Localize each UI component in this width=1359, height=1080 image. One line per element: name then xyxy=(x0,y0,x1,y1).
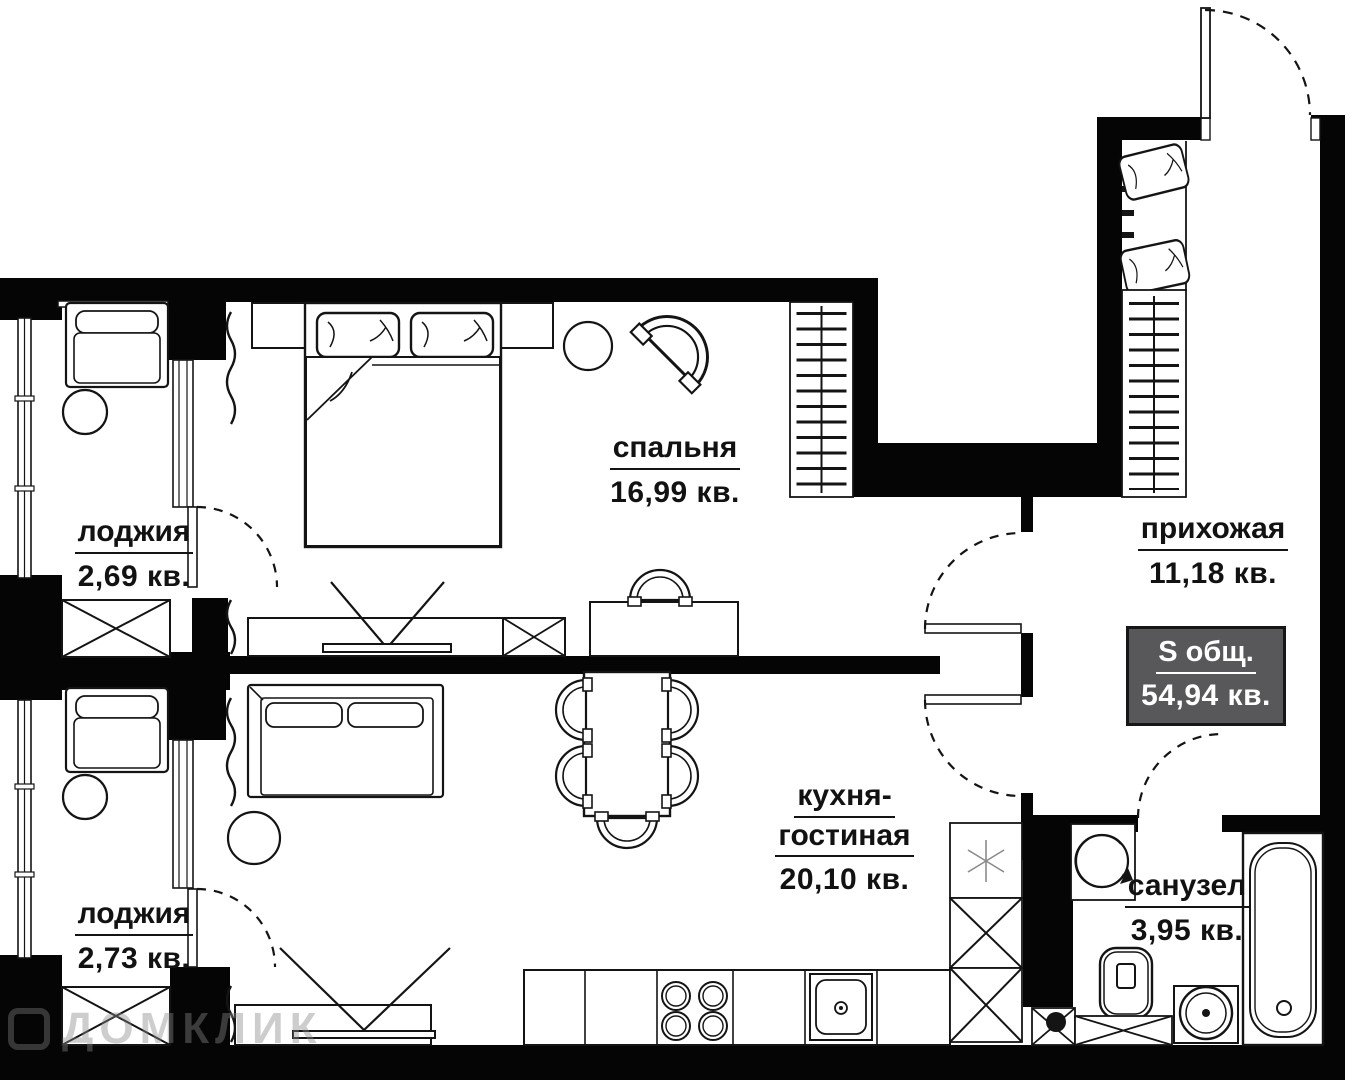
desk-icon xyxy=(590,602,738,656)
dining-chair-icon xyxy=(595,812,659,848)
room-name: гостиная xyxy=(775,820,913,858)
round-table-icon xyxy=(228,812,280,864)
room-area: 11,18 кв. xyxy=(1122,558,1304,590)
tv-unit-living xyxy=(235,948,450,1045)
tv-screen xyxy=(293,1031,435,1038)
hallway-furniture xyxy=(1118,141,1191,497)
dining-chair-icon xyxy=(556,678,592,742)
dining-table-icon xyxy=(584,672,670,816)
door-leaf xyxy=(925,695,1021,704)
dining-set xyxy=(556,672,698,848)
tv-unit-bedroom xyxy=(248,582,565,656)
bed-icon xyxy=(305,303,501,547)
toilet-icon xyxy=(1100,948,1152,1018)
cabinet-x-icon xyxy=(1075,1016,1172,1045)
room-name: прихожая xyxy=(1138,513,1289,551)
window-loggia-bottom-exterior xyxy=(15,700,34,958)
total-area-label: S общ. xyxy=(1156,636,1256,674)
loggia-top-furniture xyxy=(62,303,170,657)
bathroom-door-arc xyxy=(1138,734,1222,818)
dining-chair-icon xyxy=(662,678,698,742)
cabinet-x-icon xyxy=(950,968,1022,1042)
room-name: спальня xyxy=(610,432,741,470)
round-table-icon xyxy=(564,322,612,370)
coffee-table-icon xyxy=(63,390,107,434)
armchair-icon xyxy=(66,303,168,387)
room-area: 2,73 кв. xyxy=(48,943,220,975)
room-name: лоджия xyxy=(75,898,194,936)
dining-chair-icon xyxy=(556,744,592,808)
loggia-bottom-furniture xyxy=(62,688,170,1045)
kitchen-sink-icon xyxy=(810,974,872,1040)
room-name: лоджия xyxy=(75,516,194,554)
storage-box-icon xyxy=(62,600,170,657)
cabinet-x-icon xyxy=(1032,1008,1075,1045)
dining-chair-icon xyxy=(662,744,698,808)
nightstand-icon xyxy=(252,303,305,348)
fridge-icon xyxy=(950,823,1022,898)
label-kitchen-living: кухня- гостиная 20,10 кв. xyxy=(742,780,947,896)
entrance-door-leaf xyxy=(1201,8,1210,118)
bedroom-door xyxy=(925,533,1021,633)
blanket xyxy=(306,357,500,546)
bathroom-sink-icon xyxy=(1174,986,1238,1043)
floorplan: спальня 16,99 кв. лоджия 2,69 кв. лоджия… xyxy=(0,0,1359,1080)
nightstand-icon xyxy=(501,303,553,348)
room-area: 3,95 кв. xyxy=(1098,915,1276,947)
cabinet-x-icon xyxy=(503,618,565,656)
pillow-icon xyxy=(1118,143,1191,201)
wardrobe-bedroom-icon xyxy=(790,302,853,497)
window-loggia-bottom-partition xyxy=(173,740,193,888)
label-bedroom: спальня 16,99 кв. xyxy=(575,432,775,508)
window-loggia-top-partition xyxy=(173,360,193,507)
total-area-value: 54,94 кв. xyxy=(1129,679,1283,713)
label-hallway: прихожая 11,18 кв. xyxy=(1122,513,1304,589)
entrance-door-arc xyxy=(1205,10,1310,115)
pillow-icon xyxy=(1119,239,1191,295)
lounge-chair-icon xyxy=(631,298,726,393)
shelf-tick xyxy=(1122,210,1134,216)
door-arc xyxy=(925,533,1021,629)
room-name: кухня- xyxy=(794,780,894,818)
label-loggia-top: лоджия 2,69 кв. xyxy=(48,516,220,592)
window-loggia-top-exterior xyxy=(15,318,34,578)
desk-chair-icon xyxy=(628,570,692,606)
total-area-badge: S общ. 54,94 кв. xyxy=(1126,626,1286,726)
room-area: 2,69 кв. xyxy=(48,561,220,593)
curtain-icon xyxy=(227,600,235,654)
label-loggia-bottom: лоджия 2,73 кв. xyxy=(48,898,220,974)
storage-box-icon xyxy=(62,987,170,1045)
kitchen-counter xyxy=(524,970,950,1045)
room-area: 20,10 кв. xyxy=(742,864,947,896)
armchair-icon xyxy=(66,688,168,772)
sofa-icon xyxy=(248,685,443,797)
curtain-icon xyxy=(227,698,235,806)
room-name: санузел xyxy=(1125,870,1249,908)
tv-screen xyxy=(323,644,451,652)
cabinet-x-icon xyxy=(950,898,1022,968)
coffee-table-icon xyxy=(63,775,107,819)
shelf-tick xyxy=(1122,232,1134,238)
label-bathroom: санузел 3,95 кв. xyxy=(1098,870,1276,946)
wardrobe-hallway-icon xyxy=(1122,290,1186,497)
entrance-door xyxy=(1201,8,1320,140)
door-leaf xyxy=(925,624,1021,633)
room-area: 16,99 кв. xyxy=(575,477,775,509)
drain-dot xyxy=(1046,1012,1066,1032)
curtain-icon xyxy=(227,312,235,424)
